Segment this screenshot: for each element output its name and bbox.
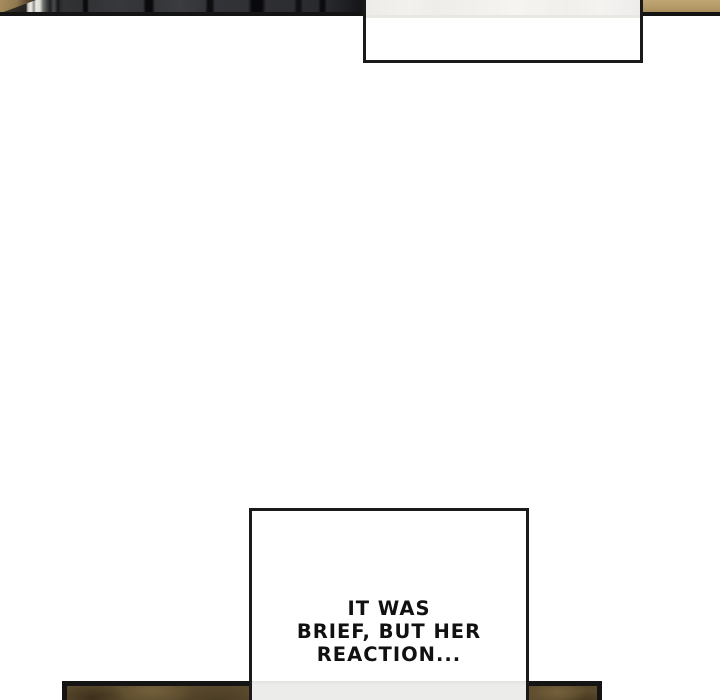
speech-line-1: IT WAS [252,597,526,620]
top-speech-bubble [363,0,643,63]
top-bubble-panel-shading [366,0,640,15]
speech-line-2: BRIEF, BUT HER [252,620,526,643]
top-bubble-shading-edge [366,15,640,18]
comic-page: IT WAS BRIEF, BUT HER REACTION... [0,0,720,700]
speech-text: IT WAS BRIEF, BUT HER REACTION... [252,597,526,666]
bottom-speech-bubble: IT WAS BRIEF, BUT HER REACTION... [249,508,529,700]
speech-line-3: REACTION... [252,643,526,666]
bottom-bubble-panel-overlap [252,681,526,700]
top-panel-dark-interior-scene [0,0,365,12]
